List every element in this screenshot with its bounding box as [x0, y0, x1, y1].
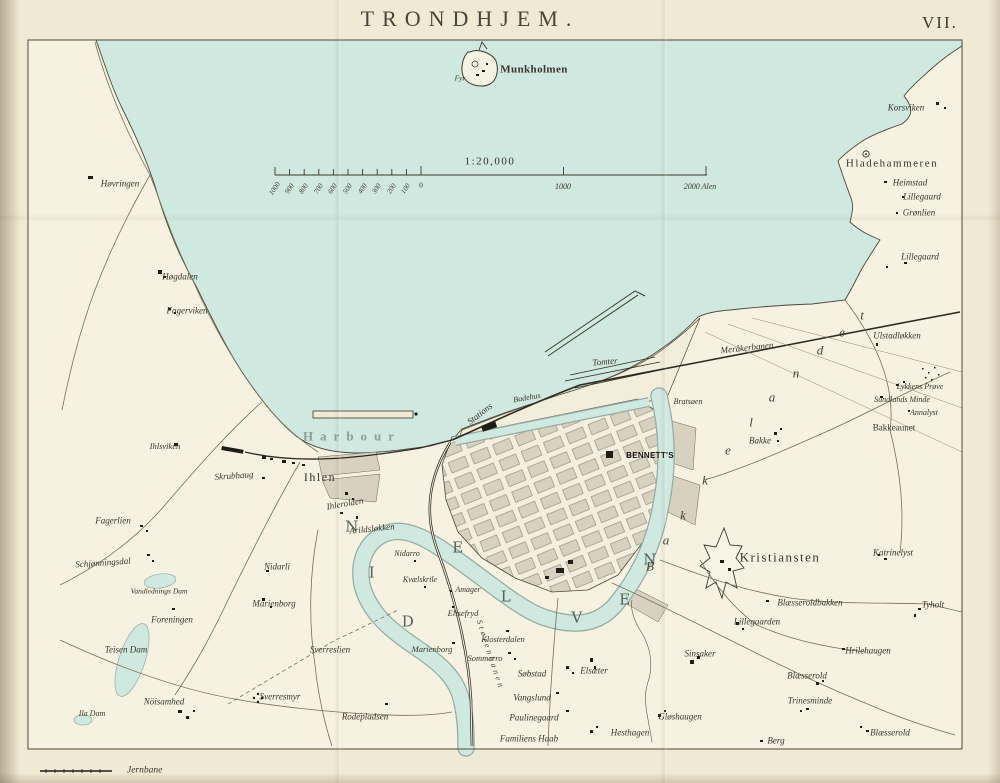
map-label-bakkeaunet: Bakkeaunet [873, 424, 915, 433]
scale-tick-label: 900 [284, 183, 296, 196]
map-label-e: e [839, 326, 845, 339]
map-label-hesthagen: Hesthagen [611, 729, 650, 738]
map-label-trinesminde: Trinesminde [788, 697, 833, 706]
scale-tick-label: 700 [313, 183, 325, 196]
map-label-e: E [619, 593, 630, 608]
map-label-munkholmen: Munkholmen [500, 65, 568, 76]
map-label-v: V [571, 611, 582, 626]
scale-tick-label: 100 [401, 183, 413, 196]
map-label-fyr: Fyr [455, 74, 466, 82]
map-label-bennett-s: BENNETT'S [626, 452, 674, 460]
plate-number: VII. [922, 13, 958, 33]
map-label-marienborg: Marienborg [252, 600, 295, 609]
map-label-b: B [646, 560, 654, 573]
map-label-mer-kerbanen: Meråkerbanen [720, 341, 774, 355]
map-label-marienborg: Marienborg [412, 645, 453, 654]
map-title: TRONDHJEM. [0, 6, 940, 32]
map-label-berg: Berg [767, 737, 784, 746]
map-label-korsviken: Korsviken [888, 104, 925, 113]
map-label-bl-sserold: Blæsserold [787, 672, 827, 681]
map-label-harbour: Harbour [303, 430, 401, 443]
map-label-tomter: Tomter [592, 356, 618, 367]
scale-tick-label: 400 [357, 183, 369, 196]
map-label-i: I [369, 566, 375, 581]
map-label-e: e [725, 444, 731, 457]
map-label-gl-shaugen: Gløshaugen [658, 713, 702, 722]
map-label-ulstadl-kken: Ulstadløkken [873, 332, 921, 341]
map-label-tyholt: Tyholt [922, 601, 944, 610]
map-label-paulinegaard: Paulinegaard [509, 714, 558, 723]
map-label-schj-nningsdal: Schjønningsdal [75, 557, 131, 570]
map-label-katrinelyst: Katrinelyst [873, 549, 913, 558]
map-label-brats-en: Bratsøen [674, 398, 703, 406]
map-label-lillegaard: Lillegaard [903, 193, 941, 202]
map-label-vandlednings-dam: Vandlednings Dam [131, 587, 188, 595]
map-label-s-bstad: Søbstad [518, 670, 547, 679]
scale-tick-label: 1000 [268, 181, 282, 197]
map-label-badehus: Badehus [513, 392, 542, 405]
map-label-skrubhaug: Skrubhaug [214, 470, 254, 482]
map-label-bl-sseroldbakken: Blæsseroldbakken [777, 599, 842, 608]
map-label-fagerlien: Fagerlien [95, 517, 131, 526]
map-label-annalyst: Annalyst [910, 409, 938, 417]
map-label-a: a [769, 391, 776, 404]
map-label-sverreslien: Sverreslien [310, 646, 350, 655]
map-label-foreningen: Foreningen [151, 616, 193, 625]
map-label-hrilehaugen: Hrilehaugen [845, 647, 891, 656]
map-label-h-vringen: Høvringen [101, 180, 140, 189]
map-label-rodepladsen: Rodepladsen [342, 713, 389, 722]
map-label-bakke: Bakke [749, 437, 771, 446]
map-label-n-isamhed: Nöisamhed [144, 698, 185, 707]
map-label-d: D [402, 615, 415, 630]
map-label-h-gdalen: Høgdalen [162, 273, 198, 282]
map-label-sinsaker: Sinsaker [685, 650, 716, 659]
map-label-ihlen: Ihlen [304, 471, 336, 483]
map-label-sverresmyr: Sverresmyr [260, 693, 301, 702]
map-label-els-ter: Elsæter [580, 667, 608, 676]
map-label-vangslund: Vangslund [513, 694, 551, 703]
map-label-lykkens-pr-ve: Lykkens Prøve [897, 383, 944, 391]
map-label-amager: Amager [455, 586, 480, 594]
map-label-ihlsviken: Ihlsviken [150, 442, 181, 451]
map-label-n: N [345, 520, 359, 535]
scale-tick-label: 600 [328, 183, 340, 196]
map-label-n: n [793, 367, 800, 380]
map-label-l: l [749, 416, 753, 429]
map-label-sundlands-minde: Sundlands Minde [874, 396, 930, 404]
map-label-2000-alen: 2000 Alen [684, 183, 717, 191]
map-label-k: k [702, 474, 708, 487]
map-label-hladehammeren: Hladehammeren [846, 159, 938, 170]
map-label-lillegaard: Lillegaard [901, 253, 939, 262]
map-label-nidarli: Nidarli [264, 563, 290, 572]
scale-tick-label: 500 [342, 183, 354, 196]
map-label-nidarro: Nidarro [394, 550, 420, 558]
map-label-elisefryd: Elisefryd [448, 609, 479, 618]
map-label-familiens-haab: Familiens Haab [500, 735, 558, 744]
map-label-k: k [680, 509, 686, 522]
legend-railway-label: Jernbane [127, 766, 162, 776]
map-sheet: MunkholmenFyr1:20,000010002000 AlenKorsv… [0, 0, 1000, 783]
map-label-bl-sserold: Blæsserold [870, 729, 910, 738]
map-label-l: L [501, 590, 511, 605]
map-label-ihlerolden: Ihlerolden [326, 496, 364, 511]
map-label-1000: 1000 [555, 183, 571, 191]
map-label-0: 0 [419, 181, 423, 189]
scale-tick-label: 200 [386, 183, 398, 196]
map-label-t: t [860, 309, 864, 322]
map-label-e: E [452, 541, 463, 556]
map-label-a: a [663, 534, 670, 547]
map-label-stations: Stations [466, 402, 494, 427]
map-label-lillegaarden: Lillegaarden [734, 618, 780, 627]
map-label-fagerviken: Fagerviken [167, 307, 208, 316]
scale-tick-label: 800 [298, 183, 310, 196]
map-label-kv-lskrile: Kvælskrile [403, 576, 437, 584]
map-label-heimstad: Heimstad [893, 179, 928, 188]
map-label-d: d [817, 344, 824, 357]
map-label-kristiansten: Kristiansten [740, 551, 821, 564]
map-label-1-20-000: 1:20,000 [465, 157, 516, 168]
map-label-gr-nlien: Grønlien [903, 209, 936, 218]
map-label-ila-dam: Ila Dam [79, 710, 105, 718]
map-labels-layer: MunkholmenFyr1:20,000010002000 AlenKorsv… [0, 0, 1000, 783]
scale-tick-label: 300 [371, 183, 383, 196]
map-label-teisen-dam: Teisen Dam [105, 646, 147, 655]
